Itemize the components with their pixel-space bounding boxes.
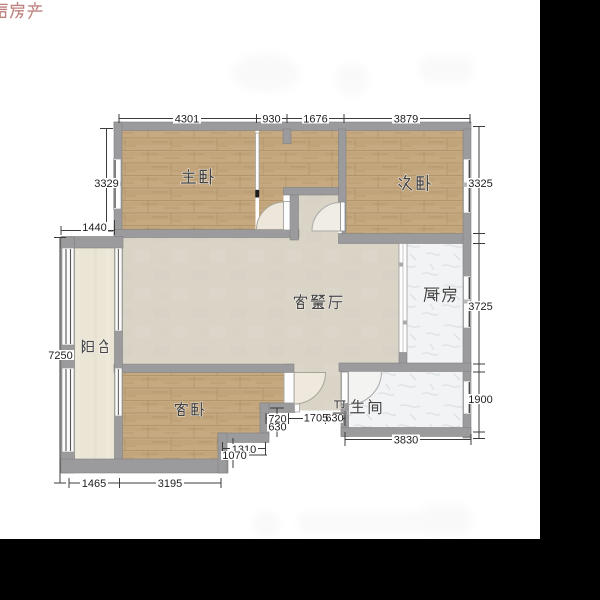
svg-text:7250: 7250 [48, 350, 72, 362]
svg-text:3195: 3195 [158, 478, 182, 490]
svg-text:3879: 3879 [394, 113, 418, 125]
svg-text:930: 930 [262, 113, 280, 125]
svg-text:3325: 3325 [468, 178, 492, 190]
svg-text:3830: 3830 [394, 434, 418, 446]
svg-text:1676: 1676 [303, 113, 327, 125]
svg-text:1440: 1440 [82, 222, 106, 234]
svg-text:630: 630 [268, 422, 286, 434]
svg-text:1465: 1465 [82, 478, 106, 490]
svg-text:3329: 3329 [94, 178, 118, 190]
svg-text:4301: 4301 [175, 113, 199, 125]
svg-text:1070: 1070 [222, 450, 246, 462]
svg-text:3725: 3725 [468, 301, 492, 313]
svg-text:1900: 1900 [468, 394, 492, 406]
